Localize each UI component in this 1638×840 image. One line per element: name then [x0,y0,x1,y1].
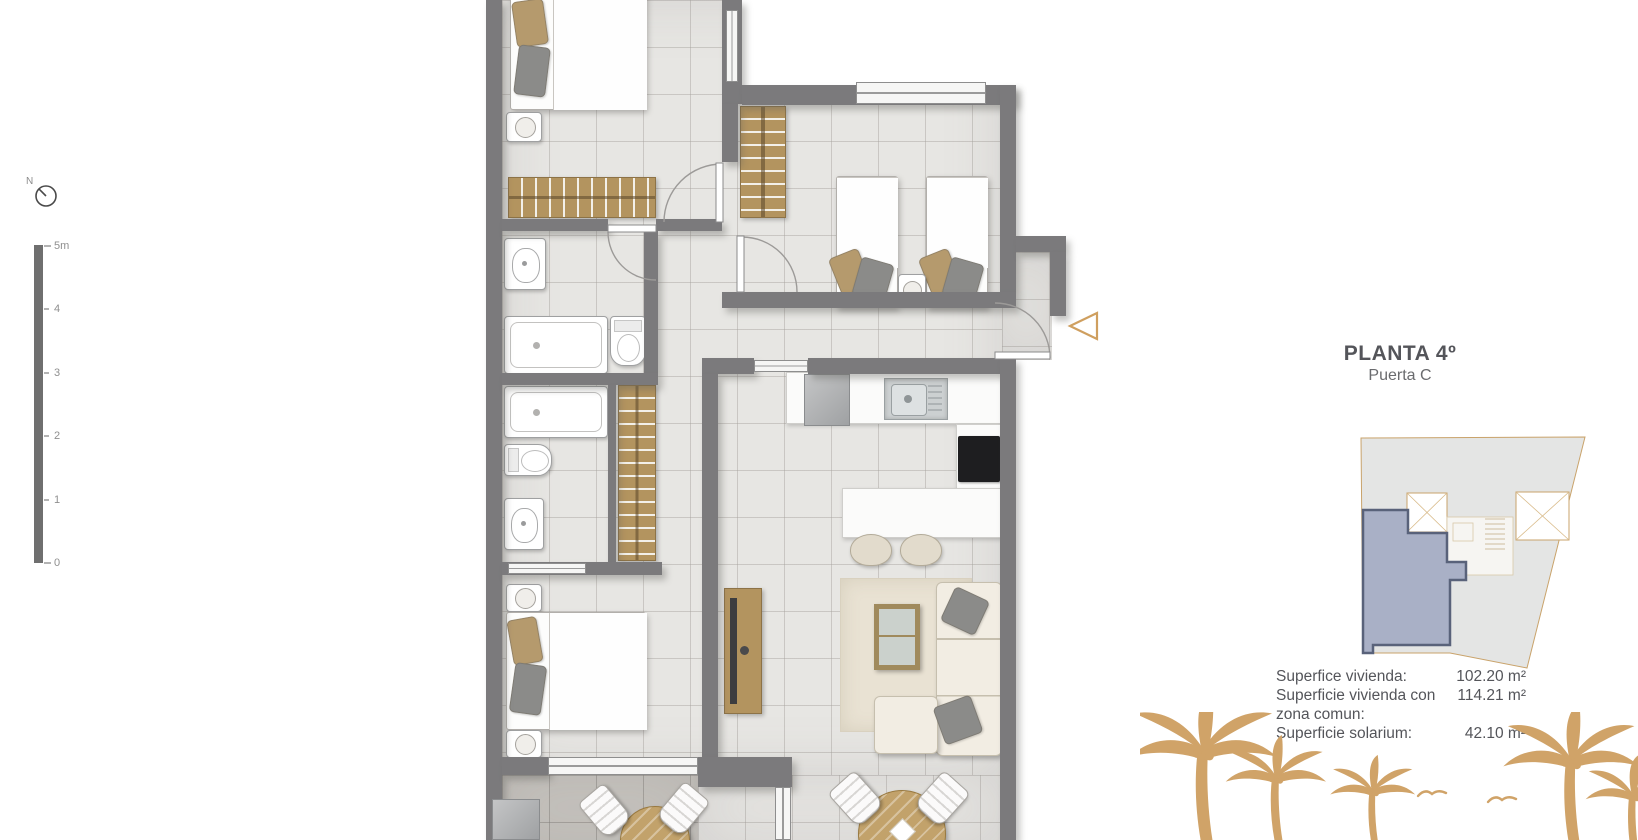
tv-screen [730,598,737,704]
scale-label: 5m [54,240,69,252]
outside-area [742,0,1004,85]
north-compass-icon [32,182,60,210]
area-label: Superfice vivienda: [1276,667,1456,686]
scale-label: 0 [54,557,60,569]
corridor-closet [618,385,656,561]
wall [502,757,548,775]
pillow [511,0,549,48]
scale-tick [44,245,51,247]
sliding-door [548,757,698,775]
wall [608,385,616,562]
wall [1016,236,1066,252]
sofa-chaise [874,696,938,754]
lamp [515,734,536,755]
key-plan [1290,405,1638,675]
wall [722,292,1016,308]
scale-label: 2 [54,430,60,442]
sliding-door [775,787,791,840]
scale-label: 4 [54,303,60,315]
air-conditioner [492,799,540,840]
plan-title: PLANTA 4º [1290,342,1510,366]
floor-plan-page: N 5m 4 3 2 1 0 PLANTA 4º Puerta C [0,0,1638,840]
wardrobe [508,177,656,218]
scale-label: 1 [54,494,60,506]
wall [722,104,738,162]
duvet [553,0,647,110]
sliding-door [508,563,586,574]
bird-icon [1488,797,1516,802]
tv-knob [740,646,749,655]
window [856,82,986,104]
scale-tick [44,372,49,374]
scale-tick [44,435,49,437]
area-value: 114.21 m² [1457,686,1526,705]
bathtub [504,386,608,438]
wall [1050,252,1066,316]
wall [698,757,792,787]
wall [502,219,608,231]
plan-subtitle: Puerta C [1290,367,1510,385]
scale-tick [44,499,49,501]
scale-bar [34,245,43,563]
bathtub [504,316,608,374]
wall [656,219,722,231]
scale-tick [44,562,51,564]
kitchen-island [842,488,1002,538]
toilet [610,316,646,366]
coffee-table [874,604,920,670]
scale-tick [44,308,49,310]
area-row: Superfice vivienda: 102.20 m² [1276,667,1526,686]
stool [850,534,892,566]
palm-decoration [1140,712,1638,840]
cooktop [958,436,1000,482]
wardrobe [740,106,786,218]
stool [900,534,942,566]
pocket-door [754,360,808,372]
toilet [504,444,552,476]
entrance-arrow-icon [1070,313,1097,339]
wall [1000,85,1016,292]
pillow [513,44,551,98]
bird-icon [1418,791,1446,796]
washbasin [504,238,546,290]
wall [808,358,1002,374]
wall [1000,358,1016,840]
area-value: 102.20 m² [1456,667,1526,686]
lamp [515,117,536,138]
duvet [549,613,647,730]
fridge [804,374,850,426]
kitchen-sink [884,378,948,420]
wall [702,358,754,374]
wall [644,231,658,373]
wall [486,0,502,840]
lamp [515,588,536,609]
scale-label: 3 [54,367,60,379]
wall [502,373,658,385]
washbasin [504,498,544,550]
wall [702,374,718,758]
window [726,10,738,82]
